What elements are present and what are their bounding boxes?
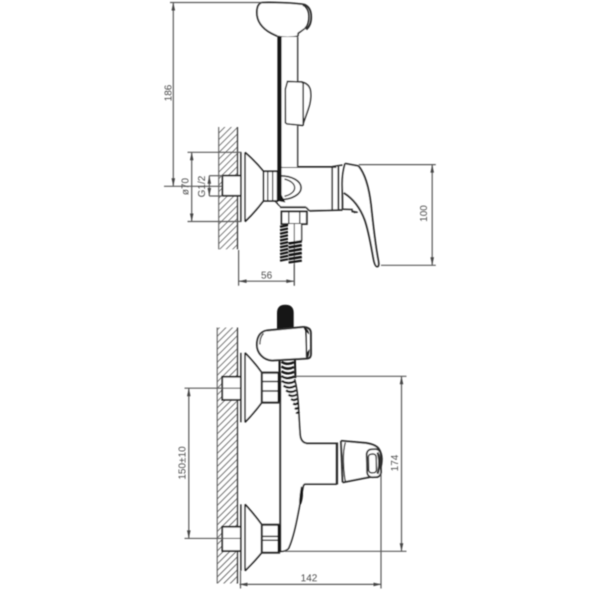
svg-text:100: 100: [419, 205, 430, 222]
svg-text:G1/2: G1/2: [197, 175, 208, 197]
svg-text:142: 142: [301, 573, 318, 584]
svg-text:186: 186: [164, 84, 175, 101]
svg-text:174: 174: [390, 454, 401, 471]
svg-text:ø70: ø70: [181, 177, 192, 195]
svg-text:56: 56: [261, 270, 273, 281]
svg-text:150±10: 150±10: [178, 446, 189, 480]
